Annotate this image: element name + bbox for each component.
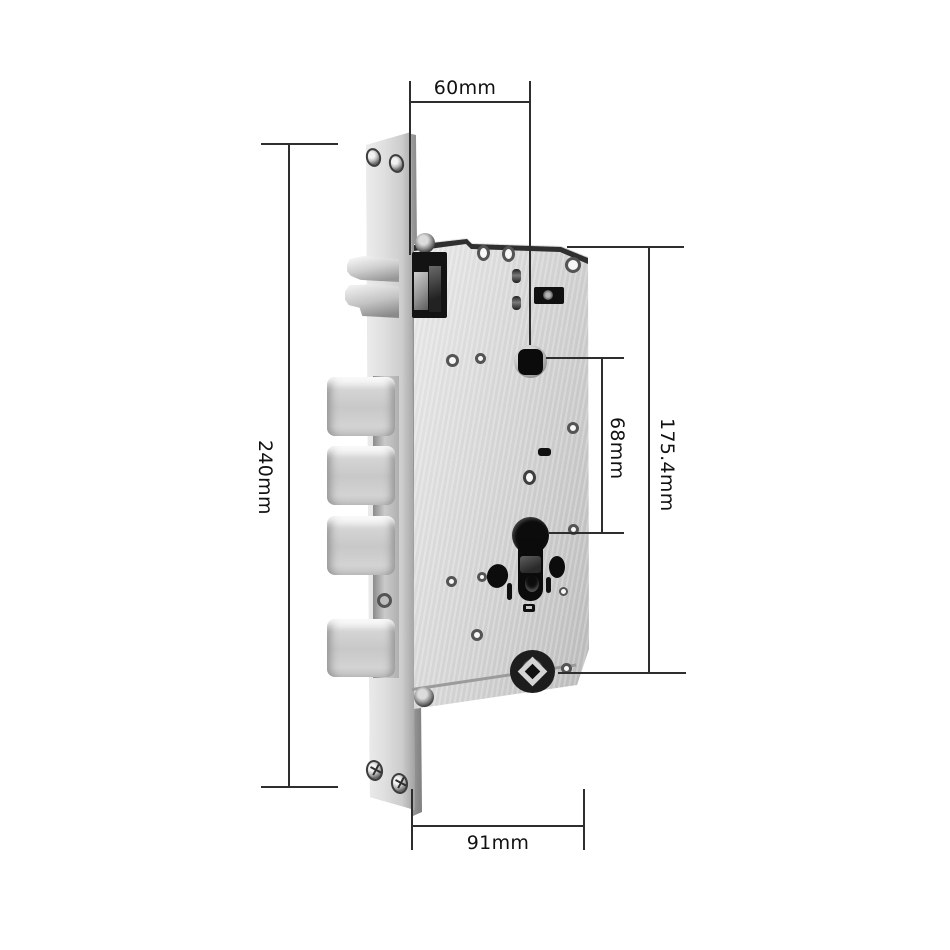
side-oval-hole-right (549, 556, 565, 578)
case-hole-lower-left-1 (446, 576, 457, 587)
lock-case (410, 230, 610, 720)
latch-hook-upper (347, 256, 399, 282)
case-oval-hole-2 (502, 246, 515, 262)
dim-240-tick-bottom (261, 786, 338, 788)
deadbolt-3 (327, 516, 395, 575)
dim-60-tick-right (529, 81, 531, 345)
thin-slot-right (546, 577, 551, 593)
dim-175-tick-bottom (558, 672, 686, 674)
case-hole-lower-right (559, 587, 568, 596)
dim-68-tick-bottom (549, 532, 624, 534)
case-screw-top-right (565, 257, 581, 273)
dim-68-tick-top (546, 357, 624, 359)
dim-60-label: 60mm (400, 77, 530, 99)
small-square-slot-inner (526, 606, 532, 609)
dim-91-label: 91mm (412, 832, 584, 854)
case-slot-hole-2 (512, 296, 521, 310)
dim-240-line (288, 143, 290, 788)
case-hole-lower-left-2 (477, 572, 487, 582)
dim-60-tick-left (409, 81, 411, 255)
dim-68-line (601, 357, 603, 534)
cylinder-stem-hole (525, 575, 539, 592)
deadbolt-2 (327, 446, 395, 505)
boss-diamond (518, 657, 548, 687)
deadbolt-1 (327, 377, 395, 436)
latch-lever-inner (429, 266, 441, 312)
small-square-slot (523, 604, 535, 612)
dim-68-label: 68mm (604, 417, 630, 479)
case-slot-hole-1 (512, 269, 521, 283)
case-hole-bottom-left (471, 629, 483, 641)
latch-hook-lower (345, 284, 399, 318)
dim-175-label: 175.4mm (654, 418, 680, 512)
dim-60-line (410, 101, 530, 103)
bottom-spindle-boss (510, 650, 555, 693)
case-tiny-slot (538, 448, 551, 456)
case-screw-top-left (415, 233, 435, 253)
deadbolt-4 (327, 619, 395, 677)
case-hole-left-1 (446, 354, 459, 367)
case-oval-hole-1 (477, 245, 490, 261)
boss-core (525, 664, 541, 680)
dim-240-tick-top (261, 143, 338, 145)
case-screw-bottom-left (414, 687, 434, 707)
latch-recess (412, 252, 447, 318)
stop-lever-slot (534, 287, 564, 304)
case-edge-hole-1 (567, 422, 579, 434)
latch-bolt-inner (414, 272, 428, 310)
case-oval-hole-mid (523, 470, 536, 485)
case-hole-left-2 (475, 353, 486, 364)
lock-dimension-diagram: 60mm 240mm 68mm 175.4mm 91mm (0, 0, 950, 950)
dim-240-label: 240mm (252, 440, 278, 515)
spindle-square-hole (518, 349, 543, 375)
dim-91-line (412, 825, 584, 827)
dim-175-line (648, 246, 650, 674)
stop-lever-screw (543, 290, 553, 300)
faceplate-middle-hole (377, 593, 392, 608)
thin-slot-left (507, 583, 512, 600)
dim-175-tick-top (567, 246, 684, 248)
cylinder-cam-facet (520, 556, 541, 573)
